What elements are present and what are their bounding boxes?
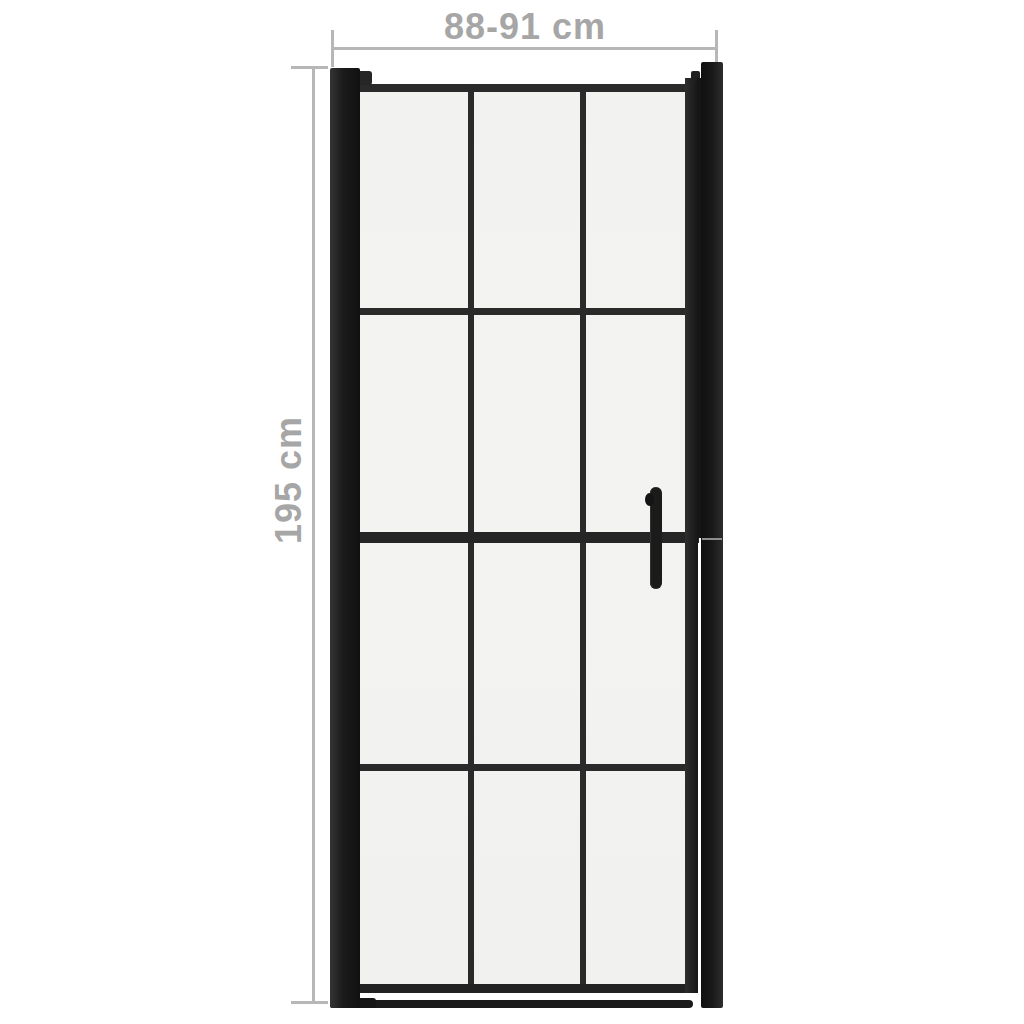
width-dimension-line: [332, 47, 718, 50]
door-threshold: [332, 1000, 693, 1008]
glass-transom-middle: [360, 532, 699, 543]
height-dimension-tick-bottom: [291, 1001, 328, 1004]
glass-transom-top: [360, 308, 686, 315]
height-dimension-label: 195 cm: [270, 432, 308, 544]
height-dimension-tick-top: [291, 66, 328, 69]
width-dimension-tick-right: [715, 30, 718, 63]
right-post-seam: [702, 538, 722, 540]
door-handle-knob: [645, 493, 654, 506]
door-top-rail: [360, 84, 686, 92]
door-bottom-rail: [354, 984, 697, 993]
height-dimension-line: [312, 68, 315, 1004]
left-wall-post: [330, 68, 360, 1008]
width-dimension-tick-left: [331, 30, 334, 67]
glass-transom-bottom: [360, 764, 686, 771]
width-dimension-label: 88-91 cm: [332, 6, 718, 48]
shower-door-dimension-diagram: 88-91 cm 195 cm: [0, 0, 1024, 1024]
right-wall-post: [701, 62, 723, 1008]
